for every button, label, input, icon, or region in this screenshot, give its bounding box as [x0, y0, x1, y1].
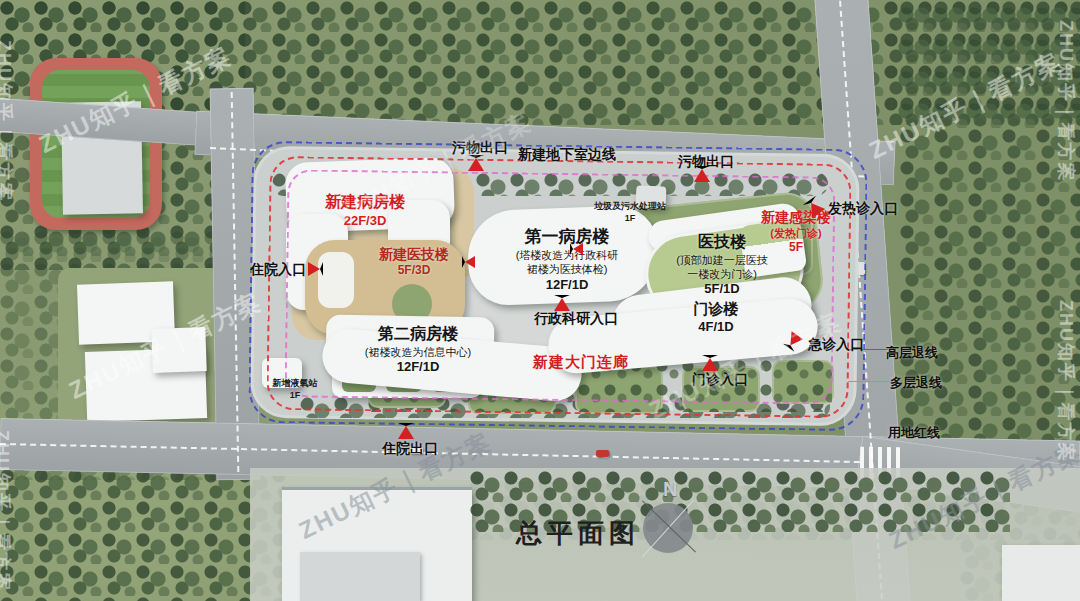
infection-note1: (发热门诊) [742, 226, 850, 240]
waste-station-name: 垃圾及污水处理站 [592, 201, 668, 213]
oxygen-station-name: 新增液氧站 [266, 378, 324, 390]
label-ward1: 第一病房楼 (塔楼改造为行政科研 裙楼为医技体检) 12F/1D [472, 226, 662, 294]
oxygen-station-floors: 1F [266, 390, 324, 402]
car [596, 450, 609, 457]
ward2-floors: 12F/1D [338, 359, 498, 376]
label-outpatient: 门诊楼 4F/1D [678, 299, 754, 335]
label-land-red-line: 用地红线 [888, 424, 940, 442]
new-ward-floors: 22F/3D [290, 213, 440, 230]
label-emergency-entrance: 急诊入口 [808, 336, 864, 354]
medtech-note2: 一楼改为门诊) [642, 267, 802, 281]
label-inpatient-exit: 住院出口 [382, 440, 438, 458]
leader-multistorey-setback [848, 381, 892, 382]
label-new-medtech: 新建医技楼 5F/3D [352, 245, 476, 279]
existing-building-bottom-2 [300, 552, 420, 601]
tree-band-bottomleft [0, 468, 285, 601]
existing-building-3 [151, 327, 207, 373]
waste-station-floors: 1F [592, 213, 668, 225]
label-outpatient-entrance: 门诊入口 [692, 371, 748, 389]
existing-building-bottom-right [1002, 545, 1080, 601]
car [858, 262, 865, 275]
compass-north-label: N [663, 478, 677, 501]
waste-out-left-arrow-icon [468, 155, 484, 171]
label-new-ward: 新建病房楼 22F/3D [290, 192, 440, 230]
inpatient-entrance-arrow-icon [308, 262, 323, 276]
waste-out-right-arrow-icon [694, 166, 710, 182]
entrance-marker-icon [570, 243, 583, 255]
new-ward-name: 新建病房楼 [290, 192, 440, 213]
infection-floors: 5F [742, 240, 850, 256]
label-admin-research-entrance: 行政科研入口 [534, 310, 618, 328]
admin-research-arrow-icon [554, 295, 570, 311]
ward1-floors: 12F/1D [472, 277, 662, 294]
page-title: 总平面图 [516, 516, 640, 551]
outpatient-name: 门诊楼 [678, 299, 754, 319]
ward1-name: 第一病房楼 [472, 226, 662, 248]
gate-corridor-name: 新建大门连廊 [516, 352, 646, 372]
outpatient-entrance-arrow-icon [702, 355, 718, 371]
medtech-floors: 5F/1D [642, 281, 802, 298]
outpatient-floors: 4F/1D [678, 319, 754, 336]
label-multistorey-setback: 多层退线 [890, 374, 942, 392]
ward1-note1: (塔楼改造为行政科研 [472, 248, 662, 262]
ward1-note2: 裙楼为医技体检) [472, 262, 662, 276]
label-inpatient-entrance: 住院入口 [250, 261, 306, 279]
label-fever-entrance: 发热诊入口 [828, 200, 898, 218]
ward2-note1: (裙楼改造为信息中心) [338, 345, 498, 359]
label-gate-corridor: 新建大门连廊 [516, 352, 646, 372]
label-waste-station: 垃圾及污水处理站 1F [592, 201, 668, 224]
new-medtech-floors: 5F/3D [352, 263, 476, 279]
label-ward2: 第二病房楼 (裙楼改造为信息中心) 12F/1D [338, 324, 498, 376]
entrance-marker-icon [462, 256, 475, 268]
label-oxygen-station: 新增液氧站 1F [266, 378, 324, 401]
building-new-medtech-court-1 [318, 252, 354, 308]
inpatient-exit-arrow-icon [398, 423, 414, 439]
label-highrise-setback: 高层退线 [886, 344, 938, 362]
label-basement-edge: 新建地下室边线 [518, 146, 616, 164]
ward2-name: 第二病房楼 [338, 324, 498, 345]
site-plan-canvas: 新建病房楼 22F/3D 新建医技楼 5F/3D 第一病房楼 (塔楼改造为行政科… [0, 0, 1080, 601]
new-medtech-name: 新建医技楼 [352, 245, 476, 263]
